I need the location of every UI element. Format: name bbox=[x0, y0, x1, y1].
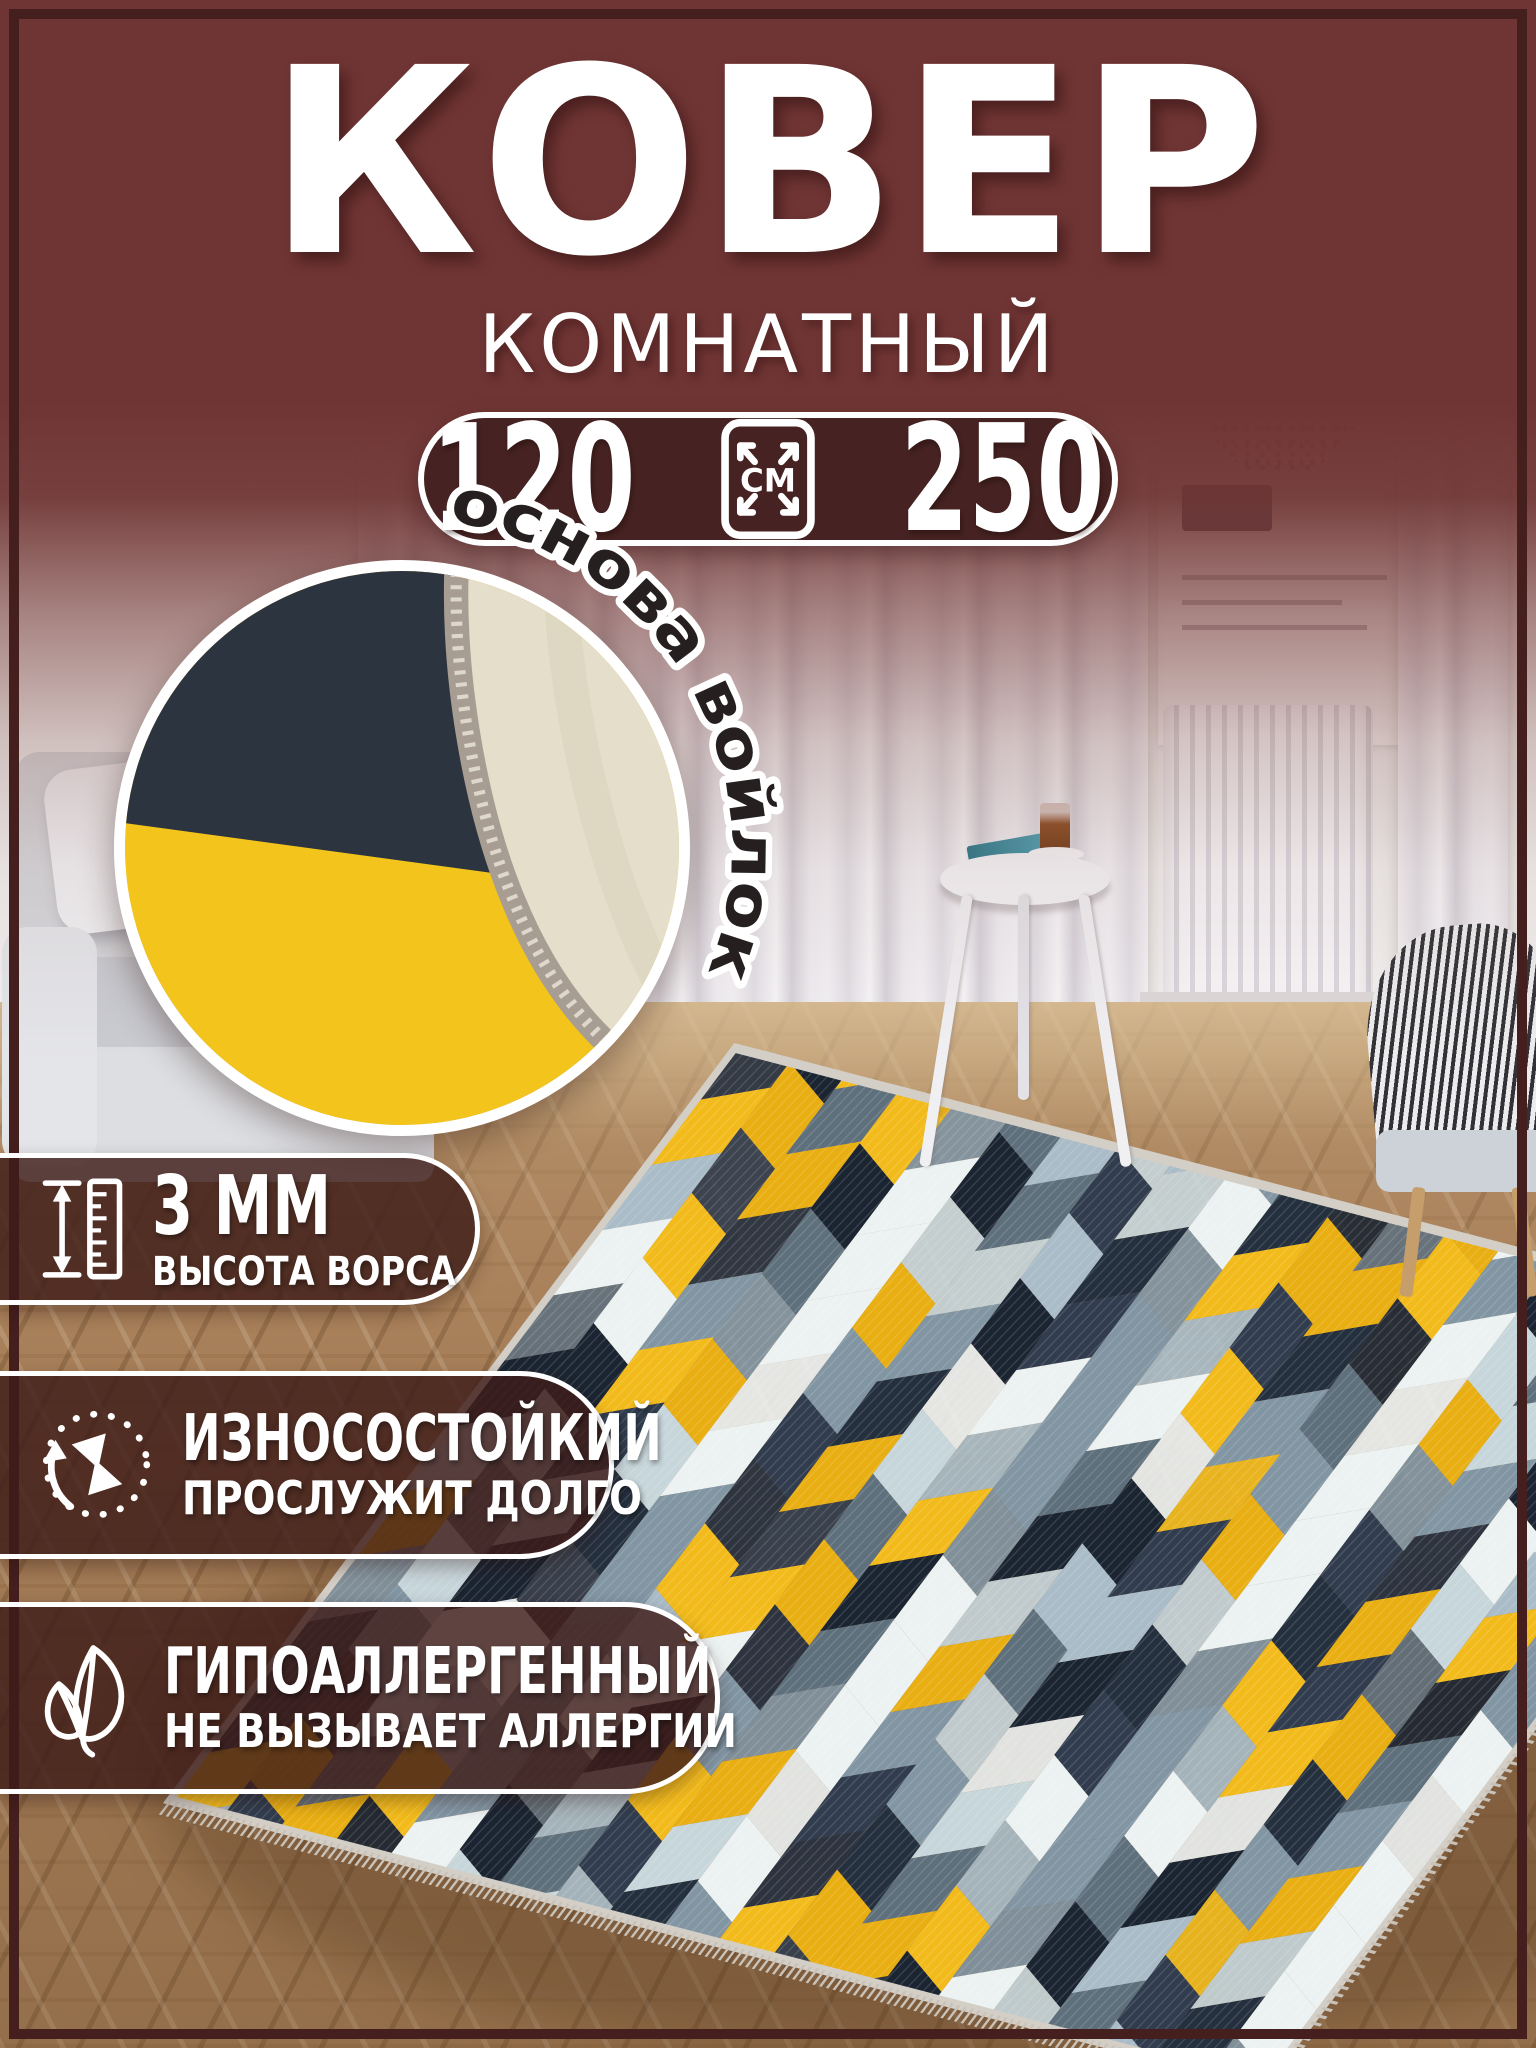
striped-armchair bbox=[1368, 925, 1536, 1315]
feature-title: 3 ММ bbox=[152, 1164, 412, 1249]
product-card: КОВЕР КОМНАТНЫЙ 120 СМ 250 bbox=[0, 0, 1536, 2048]
feature-badge-wear-resistant: ИЗНОСОСТОЙКИЙ ПРОСЛУЖИТ ДОЛГО bbox=[0, 1371, 614, 1559]
feature-badge-pile-height: 3 ММ ВЫСОТА ВОРСА bbox=[0, 1153, 480, 1305]
product-subtitle: КОМНАТНЫЙ bbox=[0, 305, 1536, 385]
feature-title: ГИПОАЛЛЕРГЕННЫЙ bbox=[164, 1639, 711, 1706]
hypoallergenic-leaf-icon bbox=[38, 1638, 138, 1758]
pile-height-ruler-icon bbox=[38, 1175, 126, 1283]
feature-subtitle: ПРОСЛУЖИТ ДОЛГО bbox=[182, 1473, 742, 1524]
wear-resistant-hourglass-icon bbox=[38, 1406, 156, 1524]
drink-glass bbox=[1040, 803, 1070, 853]
size-width-value: 120 bbox=[432, 405, 636, 553]
side-table bbox=[940, 795, 1110, 1185]
feature-title: ИЗНОСОСТОЙКИЙ bbox=[182, 1406, 662, 1473]
size-pill: 120 СМ 250 bbox=[418, 412, 1118, 546]
product-title: КОВЕР bbox=[0, 34, 1536, 292]
size-height-value: 250 bbox=[901, 405, 1105, 553]
feature-subtitle: ВЫСОТА ВОРСА bbox=[152, 1250, 456, 1294]
feature-badge-hypoallergenic: ГИПОАЛЛЕРГЕННЫЙ НЕ ВЫЗЫВАЕТ АЛЛЕРГИИ bbox=[0, 1602, 720, 1794]
cm-unit-label: СМ bbox=[740, 461, 796, 499]
material-callout-circle bbox=[114, 560, 690, 1136]
expand-arrows-cm-icon: СМ bbox=[718, 416, 818, 542]
feature-subtitle: НЕ ВЫЗЫВАЕТ АЛЛЕРГИИ bbox=[164, 1706, 803, 1757]
